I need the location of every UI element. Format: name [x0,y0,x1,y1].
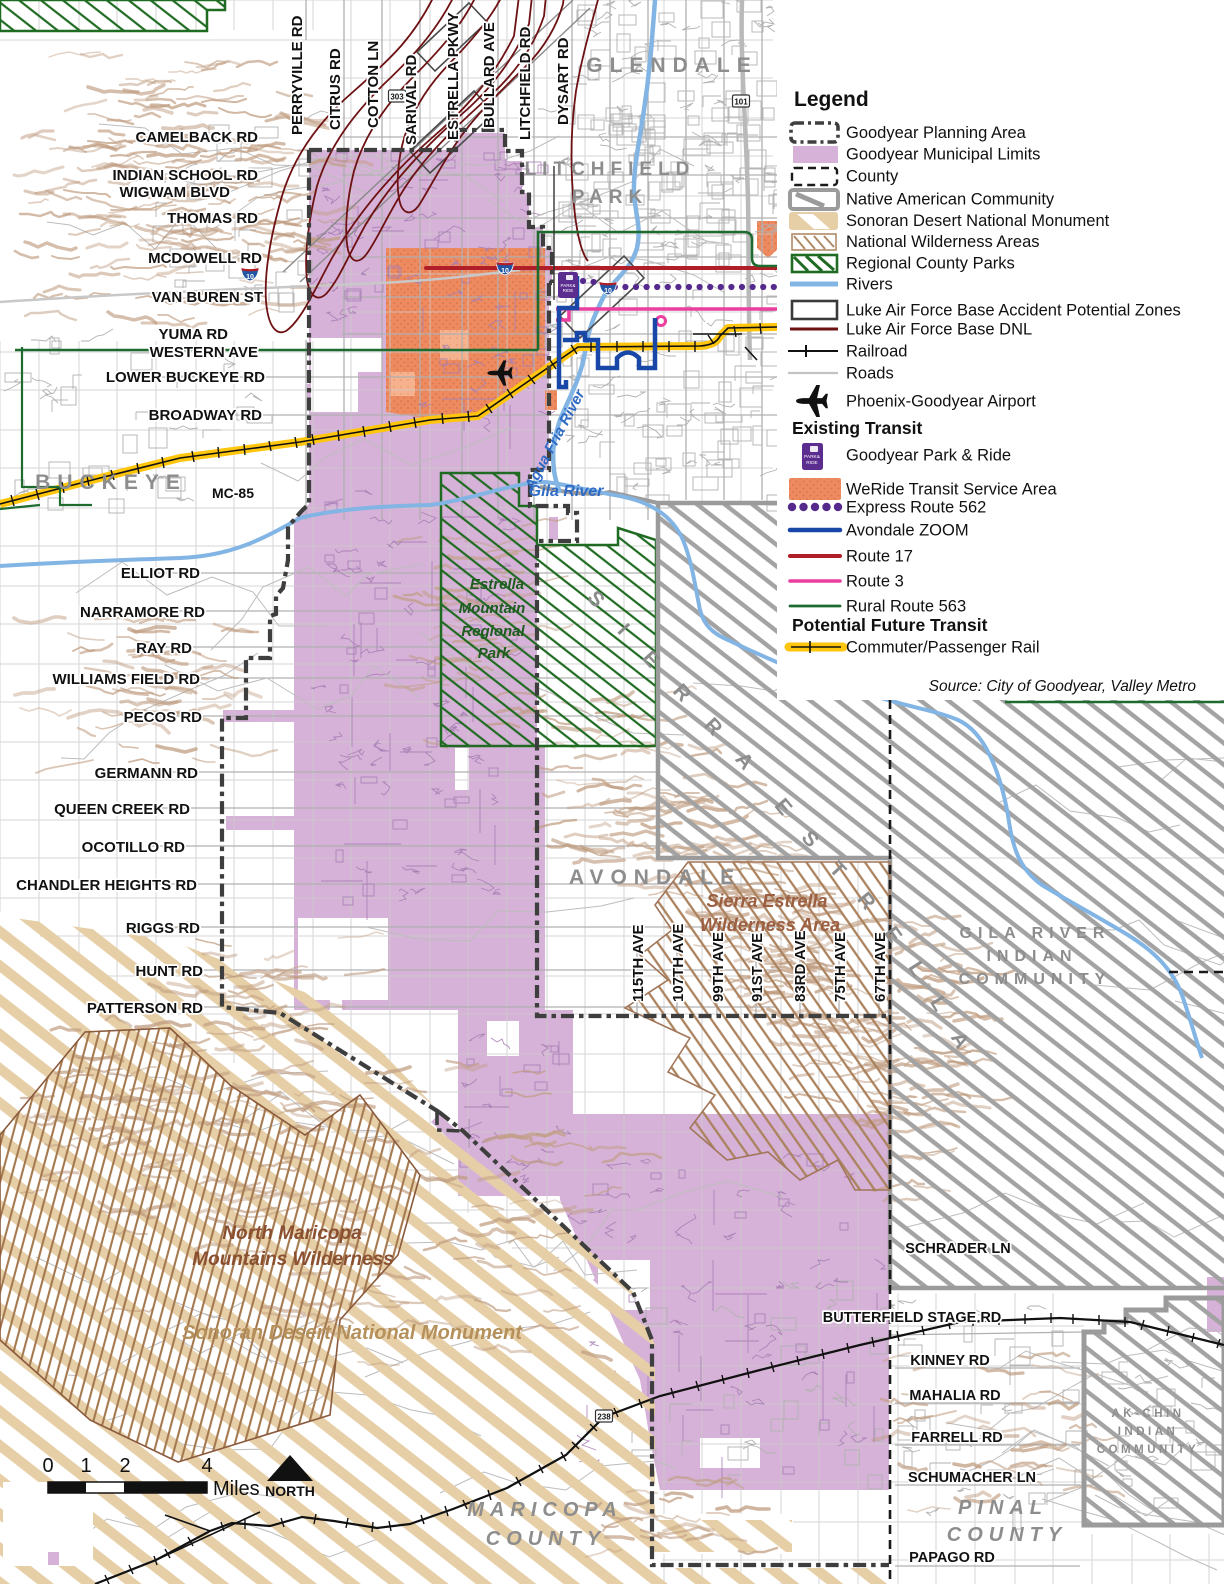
svg-text:238: 238 [597,1413,611,1422]
svg-text:THOMAS RD: THOMAS RD [167,210,258,227]
svg-text:SCHRADER LN: SCHRADER LN [905,1241,1011,1257]
svg-text:BUCKEYE: BUCKEYE [35,471,187,494]
svg-text:SCHUMACHER LN: SCHUMACHER LN [908,1470,1036,1486]
svg-text:4: 4 [201,1455,212,1477]
svg-text:99TH AVE: 99TH AVE [710,932,727,1002]
svg-text:QUEEN CREEK RD: QUEEN CREEK RD [54,801,190,818]
svg-text:Sonoran Desert National Monume: Sonoran Desert National Monument [846,212,1110,230]
svg-text:RIDE: RIDE [563,288,574,293]
svg-text:Native American Community: Native American Community [846,191,1055,209]
svg-text:MCDOWELL RD: MCDOWELL RD [148,250,262,267]
svg-text:Wilderness Area: Wilderness Area [700,915,840,935]
svg-text:2: 2 [119,1455,130,1477]
svg-text:MARICOPA: MARICOPA [467,1499,622,1521]
svg-text:COUNTY: COUNTY [486,1528,606,1550]
svg-text:AK-CHIN: AK-CHIN [1111,1408,1184,1420]
svg-text:PERRYVILLE RD: PERRYVILLE RD [289,15,306,135]
svg-text:Luke Air Force Base DNL: Luke Air Force Base DNL [846,321,1032,339]
svg-text:Phoenix-Goodyear Airport: Phoenix-Goodyear Airport [846,393,1036,411]
svg-text:FARRELL RD: FARRELL RD [911,1430,1003,1446]
svg-text:GLENDALE: GLENDALE [586,54,758,77]
svg-text:INDIAN: INDIAN [986,948,1077,965]
svg-text:BULLARD AVE: BULLARD AVE [481,22,498,128]
svg-text:PINAL: PINAL [958,1497,1048,1519]
svg-text:75TH AVE: 75TH AVE [832,932,849,1002]
svg-text:Potential Future Transit: Potential Future Transit [792,615,988,635]
svg-text:GERMANN RD: GERMANN RD [95,765,198,782]
svg-text:Miles: Miles [213,1478,260,1500]
svg-text:Park: Park [478,645,511,662]
svg-text:NARRAMORE RD: NARRAMORE RD [80,604,205,621]
svg-text:PECOS RD: PECOS RD [124,709,203,726]
svg-text:INDIAN: INDIAN [1118,1426,1179,1438]
svg-text:1: 1 [80,1455,91,1477]
svg-text:Route 17: Route 17 [846,548,913,566]
svg-text:WESTERN AVE: WESTERN AVE [150,344,258,361]
svg-text:BUTTERFIELD STAGE RD: BUTTERFIELD STAGE RD [823,1310,1002,1326]
svg-text:BROADWAY RD: BROADWAY RD [149,407,263,424]
svg-text:PARK: PARK [572,187,648,208]
svg-text:PAPAGO RD: PAPAGO RD [909,1550,995,1566]
svg-text:National Wilderness Areas: National Wilderness Areas [846,233,1040,251]
svg-text:Commuter/Passenger Rail: Commuter/Passenger Rail [846,639,1040,657]
svg-text:Rural Route 563: Rural Route 563 [846,598,966,616]
svg-text:YUMA RD: YUMA RD [159,326,229,343]
svg-text:Rivers: Rivers [846,276,893,294]
svg-text:KINNEY RD: KINNEY RD [910,1353,990,1369]
svg-text:Existing Transit: Existing Transit [792,418,922,438]
svg-text:Avondale ZOOM: Avondale ZOOM [846,522,969,540]
svg-text:Railroad: Railroad [846,343,907,361]
svg-text:115TH AVE: 115TH AVE [630,924,647,1002]
svg-text:Mountains Wilderness: Mountains Wilderness [192,1249,393,1270]
svg-text:LITCHFIELD RD: LITCHFIELD RD [517,27,534,140]
svg-text:WILLIAMS FIELD RD: WILLIAMS FIELD RD [53,671,201,688]
svg-text:LITCHFIELD: LITCHFIELD [525,159,696,180]
svg-text:Goodyear Municipal Limits: Goodyear Municipal Limits [846,146,1040,164]
svg-text:INDIAN SCHOOL RD: INDIAN SCHOOL RD [112,167,258,184]
svg-text:COUNTY: COUNTY [947,1524,1067,1546]
svg-text:Regional: Regional [461,623,525,640]
svg-text:0: 0 [42,1455,53,1477]
svg-text:Goodyear Planning Area: Goodyear Planning Area [846,124,1027,142]
svg-text:PATTERSON RD: PATTERSON RD [87,1000,203,1017]
svg-text:DYSART RD: DYSART RD [555,37,572,125]
svg-text:Sierra Estrella: Sierra Estrella [706,891,827,911]
svg-text:83RD AVE: 83RD AVE [792,930,809,1002]
svg-text:Regional County Parks: Regional County Parks [846,255,1015,273]
svg-text:SARIVAL RD: SARIVAL RD [403,55,420,145]
svg-text:COMMUNITY: COMMUNITY [1097,1444,1199,1456]
svg-text:OCOTILLO RD: OCOTILLO RD [82,839,185,856]
svg-text:Estrella: Estrella [470,576,524,593]
svg-text:10: 10 [604,288,612,295]
svg-text:RAY RD: RAY RD [136,640,192,657]
svg-text:PARK&: PARK& [804,454,821,460]
svg-text:91ST AVE: 91ST AVE [749,933,766,1002]
svg-text:AVONDALE: AVONDALE [569,866,741,889]
svg-text:RIGGS RD: RIGGS RD [126,920,200,937]
svg-text:10: 10 [501,268,509,275]
svg-text:MAHALIA RD: MAHALIA RD [909,1388,1000,1404]
svg-text:10: 10 [246,274,254,281]
svg-text:Express Route 562: Express Route 562 [846,499,986,517]
svg-text:Goodyear Park & Ride: Goodyear Park & Ride [846,447,1011,465]
svg-text:CHANDLER HEIGHTS RD: CHANDLER HEIGHTS RD [16,877,197,894]
svg-text:WeRide Transit Service Area: WeRide Transit Service Area [846,481,1057,499]
svg-text:MC-85: MC-85 [212,485,254,501]
svg-text:ESTRELLA PKWY: ESTRELLA PKWY [445,12,462,140]
svg-text:VAN BUREN ST: VAN BUREN ST [152,289,263,306]
svg-text:Source: City of Goodyear, Vall: Source: City of Goodyear, Valley Metro [929,678,1197,695]
svg-text:107TH AVE: 107TH AVE [670,924,687,1002]
svg-text:Sonoran Desert National Monume: Sonoran Desert National Monument [182,1322,523,1344]
svg-text:NORTH: NORTH [265,1483,315,1499]
svg-text:RIDE: RIDE [806,460,817,466]
svg-text:WIGWAM BLVD: WIGWAM BLVD [119,184,230,201]
svg-text:CITRUS RD: CITRUS RD [327,48,344,130]
svg-text:LOWER BUCKEYE RD: LOWER BUCKEYE RD [106,369,265,386]
svg-text:HUNT RD: HUNT RD [136,963,204,980]
svg-text:County: County [846,168,899,186]
svg-text:ELLIOT RD: ELLIOT RD [121,565,200,582]
svg-text:COMMUNITY: COMMUNITY [959,971,1112,988]
svg-text:Mountain: Mountain [459,600,526,617]
svg-text:North Maricopa: North Maricopa [222,1223,362,1244]
svg-text:CAMELBACK RD: CAMELBACK RD [136,129,259,146]
svg-text:Roads: Roads [846,365,894,383]
svg-text:Legend: Legend [794,88,869,111]
svg-text:COTTON LN: COTTON LN [365,41,382,128]
svg-text:Route 3: Route 3 [846,573,904,591]
svg-text:101: 101 [734,98,748,107]
svg-text:GILA RIVER: GILA RIVER [960,925,1111,942]
svg-text:Luke Air Force Base Accident P: Luke Air Force Base Accident Potential Z… [846,302,1181,320]
